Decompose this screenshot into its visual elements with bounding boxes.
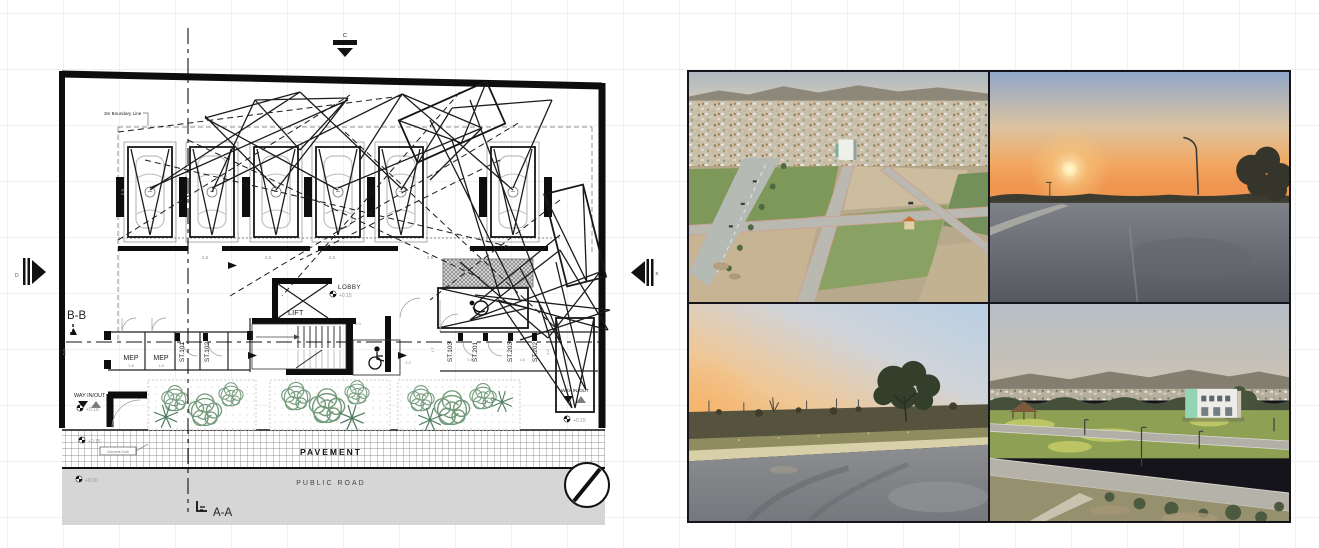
label-lift: LIFT bbox=[288, 308, 304, 317]
svg-text:B-B: B-B bbox=[67, 310, 87, 322]
svg-text:1.8: 1.8 bbox=[467, 357, 473, 362]
svg-text:1.8: 1.8 bbox=[158, 363, 164, 368]
photo-dusk-road-tree bbox=[689, 304, 988, 521]
floor-plan-svg: 3m Boundary Line bbox=[0, 0, 660, 548]
photo-sunset-road bbox=[990, 72, 1289, 302]
label-st-101: ST.101 bbox=[179, 342, 186, 363]
public-road-band bbox=[62, 469, 605, 525]
label-st-202: ST.202 bbox=[532, 342, 539, 363]
level-pavement: +0.15 bbox=[88, 439, 101, 445]
svg-text:2.5: 2.5 bbox=[202, 255, 209, 260]
svg-text:1.8: 1.8 bbox=[128, 363, 134, 368]
label-way-in-out-left: WAY IN/OUT bbox=[74, 393, 106, 399]
svg-text:E: E bbox=[656, 271, 659, 276]
svg-text:2.5: 2.5 bbox=[62, 348, 67, 355]
label-st-103: ST.103 bbox=[447, 342, 454, 363]
svg-text:2.2: 2.2 bbox=[405, 360, 411, 365]
photo-building-road bbox=[990, 304, 1289, 521]
north-symbol bbox=[565, 463, 609, 507]
site-photo-grid bbox=[687, 70, 1291, 523]
core bbox=[228, 262, 458, 375]
entry-door-arc bbox=[112, 400, 140, 428]
marker-right-e: E bbox=[631, 259, 659, 286]
svg-text:C: C bbox=[343, 33, 347, 39]
label-lobby: LOBBY bbox=[338, 284, 361, 291]
level-road: +0.00 bbox=[85, 478, 98, 484]
photo-aerial-city bbox=[689, 72, 988, 302]
workspace-canvas: 3m Boundary Line bbox=[0, 0, 1319, 548]
svg-text:2.5: 2.5 bbox=[427, 255, 434, 260]
svg-text:2.0: 2.0 bbox=[355, 321, 361, 326]
svg-text:1.7: 1.7 bbox=[430, 346, 435, 352]
svg-text:2.5: 2.5 bbox=[265, 255, 272, 260]
label-mep-2: MEP bbox=[153, 355, 169, 362]
marker-left-d: D bbox=[15, 258, 46, 285]
svg-text:2.0: 2.0 bbox=[545, 348, 550, 354]
wheelchair-icon bbox=[369, 347, 384, 369]
svg-text:2.5: 2.5 bbox=[329, 255, 336, 260]
floor-plan-drawing: 3m Boundary Line bbox=[0, 0, 660, 548]
white-building bbox=[836, 139, 857, 159]
svg-text:A-A: A-A bbox=[213, 507, 233, 519]
label-st-203: ST.203 bbox=[507, 342, 514, 363]
hatched-area bbox=[443, 259, 533, 287]
marker-section-bb: B-B bbox=[67, 310, 87, 335]
level-entry: +0.15 bbox=[86, 407, 99, 413]
level-lobby: +0.15 bbox=[339, 293, 352, 299]
label-public-road: PUBLIC ROAD bbox=[296, 480, 365, 487]
svg-text:D: D bbox=[15, 273, 19, 279]
label-mep-1: MEP bbox=[123, 355, 139, 362]
planting-beds bbox=[148, 380, 520, 431]
curb-note-label: Concrete Curb bbox=[107, 450, 129, 454]
boundary-label: 3m Boundary Line bbox=[104, 111, 142, 116]
svg-text:1.8: 1.8 bbox=[519, 357, 525, 362]
label-way-in-out-right: WAY IN/OUT bbox=[561, 388, 589, 394]
marker-top-c: C bbox=[333, 33, 357, 57]
label-pavement: PAVEMENT bbox=[300, 447, 362, 457]
way-in-out-right-arrows bbox=[563, 396, 586, 403]
label-st-102: ST.102 bbox=[204, 342, 211, 363]
accessible-stall bbox=[438, 288, 528, 328]
label-st-201: ST.201 bbox=[472, 342, 479, 363]
level-exit: +0.15 bbox=[573, 418, 586, 424]
boundary-label-group: 3m Boundary Line bbox=[104, 111, 148, 126]
svg-text:5.0: 5.0 bbox=[120, 188, 125, 195]
